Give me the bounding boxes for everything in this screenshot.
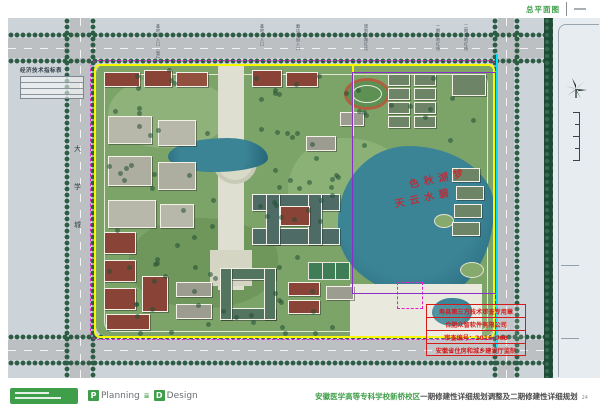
sheet-title: 总平面图 (526, 4, 560, 15)
road-name-char: 大 (74, 146, 81, 153)
brand-chip-d: D (154, 390, 165, 401)
tree-row (8, 360, 544, 366)
footer-bar: PPlanning≣DDesign 安徽医学高等专科学校新桥校区一期修建性详细规… (0, 378, 600, 412)
brand-chip-p: P (88, 390, 99, 401)
title-dash-mark (574, 8, 586, 10)
right-margin-panel (553, 18, 600, 378)
stamp-line: 寿县第三方技术审查专用章 (427, 305, 525, 318)
entrance-annotation: 基地次入口 (260, 24, 264, 47)
entrance-annotation: 二期用地红线 (464, 24, 468, 51)
entrance-annotation: 磨店家园入口 (296, 24, 300, 51)
brand-word-design: Design (167, 391, 198, 401)
entrance-annotation: 基地主入口（暂行） (156, 24, 160, 65)
project-subtitle: 一期修建性详细规划调整及二期修建性详细规划 (420, 392, 578, 401)
scale-tick (573, 136, 580, 137)
map-frame-stripe (544, 18, 553, 378)
entrance-annotation: 一期用地红线 (436, 24, 440, 51)
entrance-annotation: 规划道路红线 (364, 24, 368, 51)
stamp-line: 安徽省住房和城乡建设厅监制 (427, 344, 525, 356)
indicator-table-title: 经济技术指标表 (20, 66, 84, 74)
page-number: 24 (582, 395, 588, 401)
company-logo (10, 388, 78, 404)
scale-tick (575, 124, 580, 125)
indicator-table (20, 76, 84, 99)
site-plan-map: 经济技术指标表 大 学 城 基地主入口（暂行）基地次入口磨店家园入口规划道路红线… (8, 18, 553, 378)
indicator-table-block: 经济技术指标表 (20, 66, 84, 99)
stamp-line: 合肥众智软件有限公司 (427, 318, 525, 331)
scale-tick (575, 148, 580, 149)
dimension-mark (561, 338, 579, 339)
road-name-char: 城 (74, 222, 81, 229)
stamp-line: 审查编号：2016-008 (427, 331, 525, 344)
north-arrow-icon (563, 76, 589, 102)
road-name-char: 学 (74, 184, 81, 191)
brand-mark: PPlanning≣DDesign (88, 390, 198, 401)
brand-word-planning: Planning (101, 391, 140, 401)
scale-tick (573, 160, 580, 161)
plan-sheet: 总平面图 (0, 0, 600, 412)
project-title: 安徽医学高等专科学校新桥校区一期修建性详细规划调整及二期修建性详细规划24 (315, 391, 588, 402)
brand-separator-icon: ≣ (144, 392, 150, 400)
dimension-mark (561, 265, 579, 266)
review-stamp: 寿县第三方技术审查专用章合肥众智软件有限公司审查编号：2016-008安徽省住房… (426, 304, 526, 356)
top-margin: 总平面图 (0, 0, 600, 18)
scale-tick (573, 112, 580, 113)
project-name: 安徽医学高等专科学校新桥校区 (315, 392, 420, 401)
title-divider-line (566, 2, 567, 16)
